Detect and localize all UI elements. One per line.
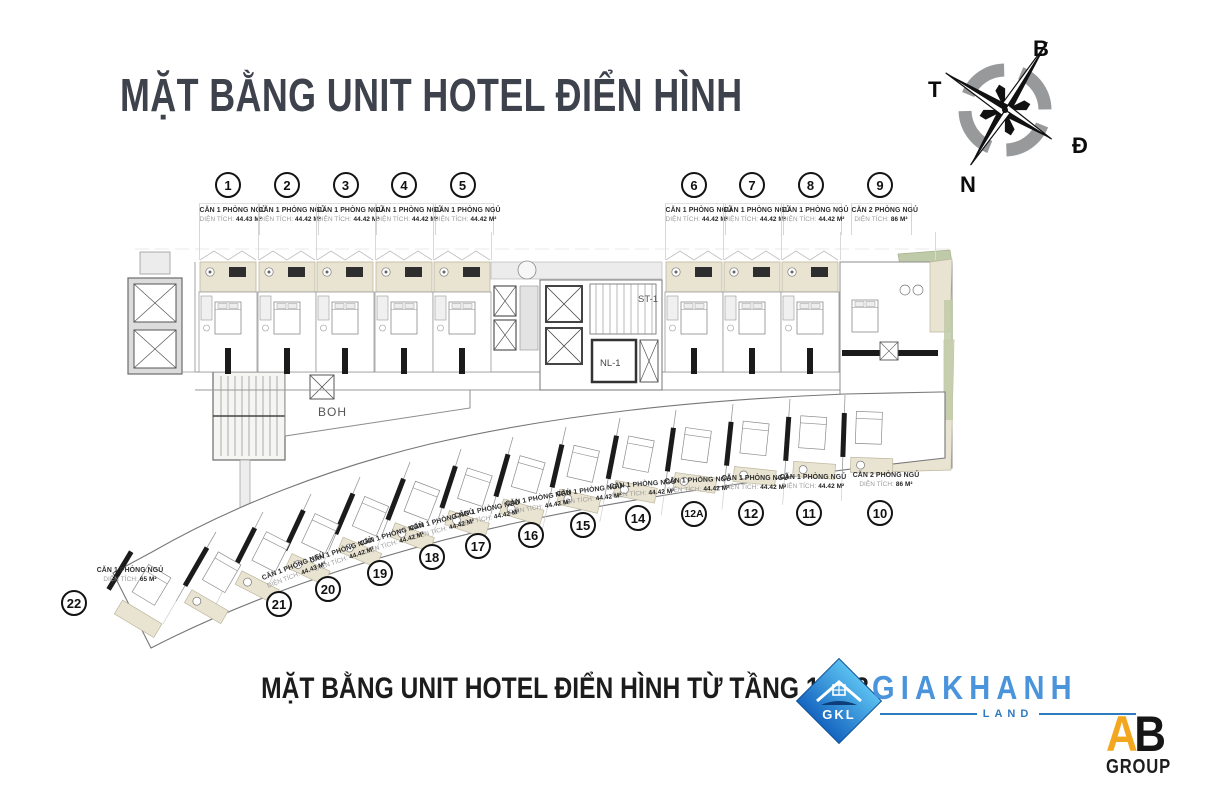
giakhanh-name: GIAKHANH: [872, 669, 1092, 707]
unit-marker-14: 14: [625, 505, 651, 531]
area-value: 86 M²: [891, 216, 908, 223]
projection-line: [491, 232, 492, 260]
ab-letter-b: B: [1134, 706, 1162, 762]
projection-line: [433, 232, 434, 260]
unit-number: 9: [876, 178, 883, 193]
area-value: 86 M²: [896, 481, 913, 488]
area-value: 44.42 M²: [819, 216, 845, 223]
unit-area-label: DIỆN TÍCH: 44.42 M²: [434, 216, 493, 223]
unit-marker-1: 1: [215, 172, 241, 198]
unit-area-label: DIỆN TÍCH: 44.42 M²: [782, 216, 841, 223]
area-prefix: DIỆN TÍCH:: [724, 216, 759, 223]
area-prefix: DIỆN TÍCH:: [376, 216, 411, 223]
giakhanh-land: LAND: [880, 708, 1136, 720]
unit-label-1: CĂN 1 PHÒNG NGỦDIỆN TÍCH: 44.43 M²: [199, 203, 260, 235]
unit-number: 14: [631, 511, 645, 526]
area-prefix: DIỆN TÍCH:: [259, 216, 294, 223]
unit-area-label: DIỆN TÍCH: 44.42 M²: [376, 216, 435, 223]
unit-number: 8: [807, 178, 814, 193]
unit-number: 21: [272, 597, 286, 612]
unit-label-8: CĂN 1 PHÒNG NGỦDIỆN TÍCH: 44.42 M²: [781, 203, 842, 235]
area-value: 44.42 M²: [471, 216, 497, 223]
unit-number: 12: [744, 506, 758, 521]
unit-type-label: CĂN 1 PHÒNG NGỦ: [376, 207, 435, 214]
unit-marker-18: 18: [419, 544, 445, 570]
unit-marker-7: 7: [739, 172, 765, 198]
projection-line: [316, 232, 317, 260]
boh-room: BOH: [285, 372, 470, 436]
unit-marker-12A: 12A: [681, 501, 707, 527]
area-prefix: DIỆN TÍCH:: [854, 216, 889, 223]
stair-left: [213, 372, 285, 512]
central-core: ST-1 NL-1: [491, 261, 662, 390]
area-prefix: DIỆN TÍCH:: [103, 576, 138, 583]
unit-type-label: CĂN 1 PHÒNG NGỦ: [82, 567, 178, 574]
unit-label-4: CĂN 1 PHÒNG NGỦDIỆN TÍCH: 44.42 M²: [375, 203, 436, 235]
unit-marker-10: 10: [867, 500, 893, 526]
unit-number: 19: [373, 566, 387, 581]
unit-area-label: DIỆN TÍCH: 44.43 M²: [200, 216, 259, 223]
unit-label-7: CĂN 1 PHÒNG NGỦDIỆN TÍCH: 44.42 M²: [723, 203, 784, 235]
area-value: 44.42 M²: [703, 484, 729, 492]
unit-marker-16: 16: [518, 522, 544, 548]
unit-number: 10: [873, 506, 887, 521]
unit-area-label: DIỆN TÍCH: 44.42 M²: [724, 216, 783, 223]
unit-number: 12A: [684, 508, 703, 520]
unit-marker-12: 12: [738, 500, 764, 526]
unit-number: 17: [471, 539, 485, 554]
unit-area-label: DIỆN TÍCH: 44.42 M²: [259, 216, 318, 223]
unit-type-label: CĂN 1 PHÒNG NGỦ: [200, 207, 259, 214]
unit-marker-6: 6: [681, 172, 707, 198]
area-prefix: DIỆN TÍCH:: [859, 481, 894, 488]
land-rule-left: [880, 713, 977, 716]
unit-label-9: CĂN 2 PHÒNG NGỦDIỆN TÍCH: 86 M²: [851, 203, 912, 235]
unit-number: 11: [802, 506, 816, 521]
projection-line: [199, 232, 200, 260]
unit-marker-11: 11: [796, 500, 822, 526]
area-prefix: DIỆN TÍCH:: [666, 216, 701, 223]
unit-marker-3: 3: [333, 172, 359, 198]
unit-type-label: CĂN 1 PHÒNG NGỦ: [724, 207, 783, 214]
unit-number: 18: [425, 550, 439, 565]
area-prefix: DIỆN TÍCH:: [782, 216, 817, 223]
unit-number: 3: [342, 178, 349, 193]
ab-letter-a: A: [1106, 706, 1134, 762]
unit-label-5: CĂN 1 PHÒNG NGỦDIỆN TÍCH: 44.42 M²: [433, 203, 494, 235]
unit-number: 6: [690, 178, 697, 193]
unit-number: 20: [321, 582, 335, 597]
unit-type-label: CĂN 1 PHÒNG NGỦ: [259, 207, 318, 214]
unit-area-label: DIỆN TÍCH: 44.42 M²: [666, 216, 725, 223]
gkl-initials: GKL: [822, 707, 855, 722]
unit-marker-15: 15: [570, 512, 596, 538]
boh-label: BOH: [318, 405, 347, 419]
projection-line: [375, 232, 376, 260]
unit-type-label: CĂN 1 PHÒNG NGỦ: [782, 207, 841, 214]
unit-number: 5: [459, 178, 466, 193]
unit-marker-8: 8: [798, 172, 824, 198]
unit-marker-2: 2: [274, 172, 300, 198]
area-value: 65 M²: [140, 576, 157, 583]
unit-type-label: CĂN 1 PHÒNG NGỦ: [434, 207, 493, 214]
projection-line: [258, 232, 259, 260]
unit-label-22: CĂN 1 PHÒNG NGỦDIỆN TÍCH: 65 M²: [82, 567, 178, 583]
unit-type-label: CĂN 1 PHÒNG NGỦ: [666, 207, 725, 214]
unit-number: 4: [400, 178, 407, 193]
core-label: NL-1: [600, 358, 621, 369]
projection-line: [723, 232, 724, 260]
unit-number: 1: [224, 178, 231, 193]
ab-group-logo: AB GROUP: [1106, 712, 1206, 778]
unit-number: 15: [576, 518, 590, 533]
unit-number: 7: [748, 178, 755, 193]
service-shafts: [494, 286, 538, 350]
unit-area-label: DIỆN TÍCH: 44.42 M²: [317, 216, 376, 223]
area-prefix: DIỆN TÍCH:: [434, 216, 469, 223]
unit-marker-4: 4: [391, 172, 417, 198]
area-prefix: DIỆN TÍCH:: [317, 216, 352, 223]
unit-marker-5: 5: [450, 172, 476, 198]
area-value: 44.42 M²: [818, 483, 844, 490]
projection-line: [935, 232, 936, 260]
unit-number: 2: [283, 178, 290, 193]
unit-marker-22: 22: [61, 590, 87, 616]
unit-marker-9: 9: [867, 172, 893, 198]
unit-area-label: DIỆN TÍCH: 86 M²: [852, 216, 911, 223]
area-prefix: DIỆN TÍCH:: [200, 216, 235, 223]
ab-group-label: GROUP: [1106, 756, 1189, 778]
unit-label-6: CĂN 1 PHÒNG NGỦDIỆN TÍCH: 44.42 M²: [665, 203, 726, 235]
unit-label-2: CĂN 1 PHÒNG NGỦDIỆN TÍCH: 44.42 M²: [258, 203, 319, 235]
unit-number: 22: [67, 596, 81, 611]
unit-marker-21: 21: [266, 591, 292, 617]
unit-marker-20: 20: [315, 576, 341, 602]
left-elevator-core: [128, 252, 199, 374]
unit-type-label: CĂN 1 PHÒNG NGỦ: [317, 207, 376, 214]
stair-label: ST-1: [638, 294, 658, 305]
projection-line: [665, 232, 666, 260]
giakhanh-land-label: LAND: [977, 708, 1040, 720]
unit-area-label: DIỆN TÍCH: 65 M²: [82, 576, 178, 583]
unit-label-3: CĂN 1 PHÒNG NGỦDIỆN TÍCH: 44.42 M²: [316, 203, 377, 235]
unit-type-label: CĂN 2 PHÒNG NGỦ: [852, 207, 911, 214]
unit-marker-17: 17: [465, 533, 491, 559]
unit-number: 16: [524, 528, 538, 543]
projection-line: [840, 232, 841, 260]
projection-line: [781, 232, 782, 260]
area-value: 44.42 M²: [760, 484, 786, 491]
unit-marker-19: 19: [367, 560, 393, 586]
